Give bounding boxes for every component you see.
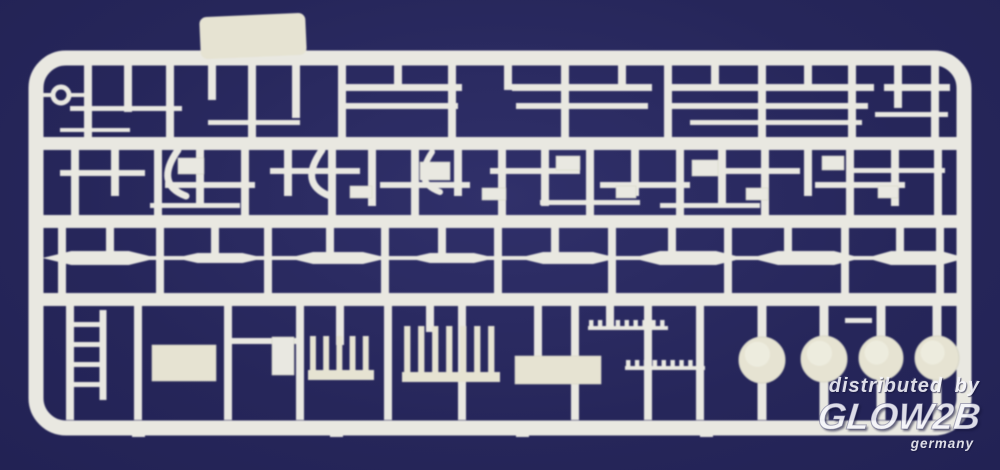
model-kit-sprue-photo: distributed by GLOW2B germany <box>0 0 1000 470</box>
sprue-frame-graphic <box>0 0 1000 470</box>
